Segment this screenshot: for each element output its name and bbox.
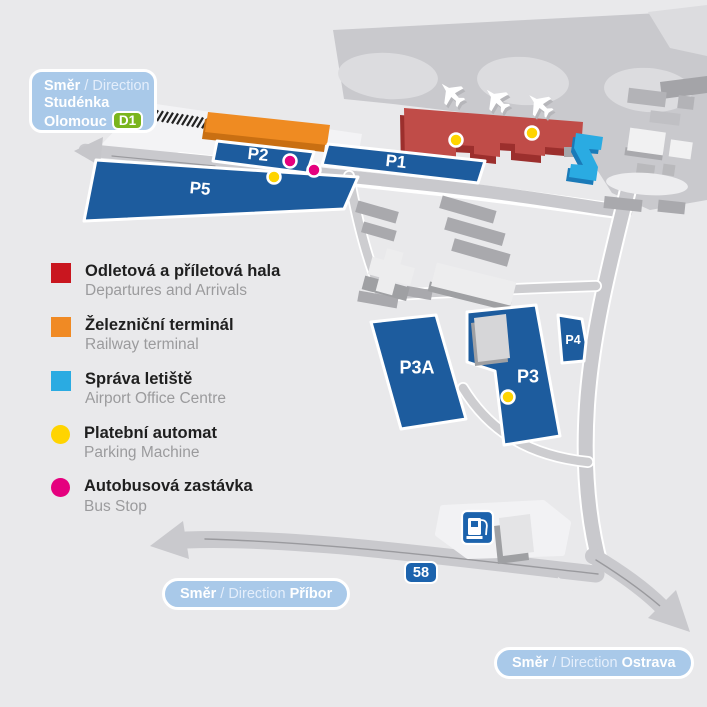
map-legend: Odletová a příletová hala Departures and… xyxy=(51,262,311,531)
parking-label-p4: P4 xyxy=(565,333,580,347)
parking-machine-dot xyxy=(526,127,539,140)
parking-machine-dot xyxy=(502,391,515,404)
legend-label-cz: Správa letiště xyxy=(85,370,226,388)
legend-label-cz: Odletová a příletová hala xyxy=(85,262,280,280)
sign-separator: / Direction xyxy=(552,655,617,671)
sign-city-olomouc: Olomouc xyxy=(44,114,107,130)
legend-label-en: Railway terminal xyxy=(85,335,234,354)
legend-item-bus-stop: Autobusová zastávka Bus Stop xyxy=(51,477,311,516)
legend-item-departures: Odletová a příletová hala Departures and… xyxy=(51,262,311,301)
legend-label-cz: Železniční terminál xyxy=(85,316,234,334)
sign-separator: / Direction xyxy=(84,78,149,94)
legend-swatch-office xyxy=(51,371,71,391)
parking-label-p5: P5 xyxy=(189,178,211,200)
bus-stop-dot xyxy=(284,155,297,168)
parking-label-p1: P1 xyxy=(385,151,408,173)
legend-item-parking-machine: Platební automat Parking Machine xyxy=(51,424,311,463)
sign-prefix: Směr xyxy=(44,78,80,94)
legend-label-en: Bus Stop xyxy=(84,497,253,516)
road-number-badge: 58 xyxy=(404,561,438,584)
legend-label-en: Departures and Arrivals xyxy=(85,281,280,300)
parking-machine-dot xyxy=(268,171,281,184)
legend-item-office: Správa letiště Airport Office Centre xyxy=(51,370,311,409)
legend-swatch-parking-machine xyxy=(51,425,70,444)
legend-swatch-railway xyxy=(51,317,71,337)
legend-swatch-departures xyxy=(51,263,71,283)
legend-swatch-bus-stop xyxy=(51,478,70,497)
airport-map: P1 P2 P5 P3A P3 P4 Směr / Direction Stud… xyxy=(0,0,707,707)
legend-label-en: Airport Office Centre xyxy=(85,389,226,408)
direction-sign-pribor: Směr / Direction Příbor xyxy=(162,578,350,610)
direction-sign-ostrava: Směr / Direction Ostrava xyxy=(494,647,694,679)
bus-stop-dot xyxy=(308,164,321,177)
direction-sign-olomouc: Směr / Direction Studénka OlomoucD1 xyxy=(29,69,157,133)
sign-separator: / Direction xyxy=(220,586,285,602)
parking-label-p3: P3 xyxy=(517,367,539,388)
fuel-station-icon xyxy=(462,511,493,544)
legend-label-cz: Autobusová zastávka xyxy=(84,477,253,495)
d1-road-badge: D1 xyxy=(112,111,143,130)
legend-item-railway: Železniční terminál Railway terminal xyxy=(51,316,311,355)
legend-label-en: Parking Machine xyxy=(84,443,217,462)
sign-prefix: Směr xyxy=(512,655,548,671)
p3-building xyxy=(471,314,510,366)
parking-label-p3a: P3A xyxy=(399,358,434,379)
sign-city-studenka: Studénka xyxy=(44,95,109,111)
legend-label-cz: Platební automat xyxy=(84,424,217,442)
parking-machine-dot xyxy=(450,134,463,147)
parking-label-p2: P2 xyxy=(247,144,270,166)
sign-prefix: Směr xyxy=(180,586,216,602)
sign-city-ostrava: Ostrava xyxy=(622,655,676,671)
sign-city-pribor: Příbor xyxy=(290,586,333,602)
